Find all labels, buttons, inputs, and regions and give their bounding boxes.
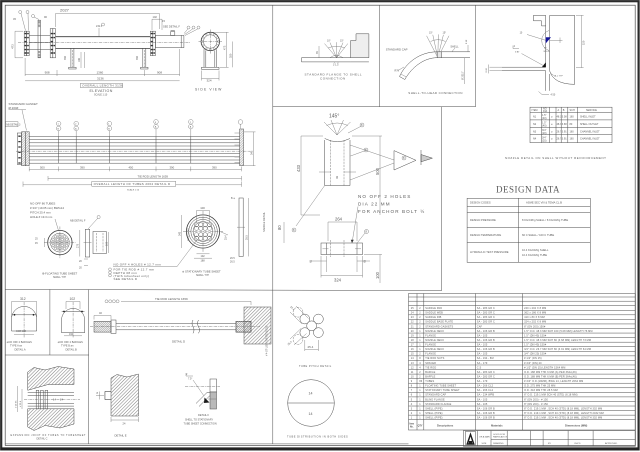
svg-text:4 50: 4 50 xyxy=(551,93,556,96)
svg-text:1.5" (DN 40) 150#: 1.5" (DN 40) 150# xyxy=(524,344,547,347)
svg-text:SA - 105: SA - 105 xyxy=(477,344,488,347)
svg-text:HYDRAULIC TEST PRESSURE: HYDRAULIC TEST PRESSURE xyxy=(470,250,509,254)
svg-text:(40): (40) xyxy=(542,117,547,120)
svg-text:SA - 266 CL2: SA - 266 CL2 xyxy=(477,389,494,392)
svg-text:ELEVATION: ELEVATION xyxy=(90,89,113,93)
svg-text:160: 160 xyxy=(570,130,575,133)
svg-text:TIE ROD LENGTH 1659: TIE ROD LENGTH 1659 xyxy=(138,175,169,179)
svg-text:⊕ FLOATING TUBE SHEET: ⊕ FLOATING TUBE SHEET xyxy=(42,272,77,276)
svg-text:100: 100 xyxy=(200,206,205,210)
svg-text:OR A MAR: OR A MAR xyxy=(479,436,490,439)
svg-text:473: 473 xyxy=(11,44,15,49)
svg-text:SCALE 1:10: SCALE 1:10 xyxy=(127,188,140,191)
svg-text:EXPANSION JOINT OF TUBES TO TU: EXPANSION JOINT OF TUBES TO TUBESHEET xyxy=(11,434,87,437)
svg-text:SMALL TYP: SMALL TYP xyxy=(53,276,66,279)
svg-text:3136: 3136 xyxy=(97,77,104,81)
svg-text:WELD: WELD xyxy=(544,51,550,53)
svg-text:DETAIL E: DETAIL E xyxy=(115,434,127,438)
svg-text:3.91: 3.91 xyxy=(562,138,567,141)
svg-text:⎈ STATIONARY TUBE SHEET: ⎈ STATIONARY TUBE SHEET xyxy=(182,270,221,274)
svg-text:102: 102 xyxy=(153,15,158,19)
svg-text:102: 102 xyxy=(70,297,76,301)
svg-text:SADDLE PAD: SADDLE PAD xyxy=(425,307,442,310)
svg-text:SHELL (PIPE): SHELL (PIPE) xyxy=(425,412,442,415)
svg-text:FLOATING TUBE SHEET: FLOATING TUBE SHEET xyxy=(425,385,456,388)
svg-text:SCH: SCH xyxy=(570,109,575,112)
svg-text:312: 312 xyxy=(20,297,26,301)
svg-text:15°: 15° xyxy=(443,32,447,35)
svg-text:186: 186 xyxy=(78,57,81,62)
svg-text:SIDE VIEW: SIDE VIEW xyxy=(195,88,222,92)
svg-text:324: 324 xyxy=(334,278,342,283)
svg-text:NB DETAIL F: NB DETAIL F xyxy=(70,219,86,223)
svg-text:STANDARD CAP: STANDARD CAP xyxy=(386,47,408,51)
svg-text:SA - 283 GR C: SA - 283 GR C xyxy=(477,307,495,310)
svg-text:SHELL INLET: SHELL INLET xyxy=(580,116,596,119)
svg-text:25.4: 25.4 xyxy=(225,235,228,240)
svg-text:OVERALL LENGTH OF TUBES 2064 D: OVERALL LENGTH OF TUBES 2064 DETAIL D xyxy=(94,182,171,186)
svg-text:8" (DN 200) - # 150: 8" (DN 200) - # 150 xyxy=(524,403,548,406)
svg-text:SADDLE BASE PLATE: SADDLE BASE PLATE xyxy=(425,321,453,324)
svg-text:BAFFLE: BAFFLE xyxy=(425,375,435,378)
svg-text:TIE ROD: TIE ROD xyxy=(425,366,436,369)
svg-text:TUBE PITCH DETAIL: TUBE PITCH DETAIL xyxy=(299,364,332,368)
svg-text:10.4 KG/CM²g TUBE: 10.4 KG/CM²g TUBE xyxy=(522,253,547,257)
svg-text:8" O.D. 219.1 MM , SCH 40 (STD: 8" O.D. 219.1 MM , SCH 40 (STD) (8.18 MM… xyxy=(524,417,602,420)
svg-text:SERVICE: SERVICE xyxy=(586,109,597,112)
svg-text:HOLE # 19.3 mm: HOLE # 19.3 mm xyxy=(30,215,53,219)
svg-text:DIA: DIA xyxy=(543,110,548,113)
svg-text:14: 14 xyxy=(309,392,313,396)
svg-text:SA - 179: SA - 179 xyxy=(477,380,488,383)
svg-text:DRAWING: DRAWING xyxy=(493,442,504,445)
svg-text:NO OFF 4 HOLES # 12.7 mm: NO OFF 4 HOLES # 12.7 mm xyxy=(114,262,162,266)
svg-text:SHELL TO STATIONARY: SHELL TO STATIONARY xyxy=(185,418,213,421)
svg-text:3/4" (DN 20) 150#: 3/4" (DN 20) 150# xyxy=(524,353,547,356)
svg-text:500: 500 xyxy=(40,165,45,169)
svg-text:NOZZLE NECK: NOZZLE NECK xyxy=(425,339,444,342)
svg-text:8" O.D. 219.1 MM SCH 40 (STD: 8" O.D. 219.1 MM SCH 40 (STD) (8.18 MM) xyxy=(524,394,578,397)
svg-text:FOR ANCHOR BOLT ½: FOR ANCHOR BOLT ½ xyxy=(358,208,425,214)
svg-text:⎈NO OFF 2 BAFFLES: ⎈NO OFF 2 BAFFLES xyxy=(58,341,84,344)
svg-text:908: 908 xyxy=(157,70,162,74)
svg-text:DESIGN PRESSURE: DESIGN PRESSURE xyxy=(470,218,496,222)
svg-text:PITCH 25.4 mm: PITCH 25.4 mm xyxy=(30,211,51,215)
svg-text:SA - 283 GR C: SA - 283 GR C xyxy=(477,312,495,315)
svg-text:7.5°: 7.5° xyxy=(188,378,192,381)
svg-text:# 1/2" (DN 15) LENGTH 1564 MM: # 1/2" (DN 15) LENGTH 1564 MM xyxy=(524,366,565,369)
svg-text:86: 86 xyxy=(419,380,423,383)
svg-text:NOZZLE NECK: NOZZLE NECK xyxy=(425,348,444,351)
svg-text:15°: 15° xyxy=(429,32,433,35)
svg-text:60 C SHELL / 100 C TUBE: 60 C SHELL / 100 C TUBE xyxy=(522,233,554,237)
svg-text:Materials: Materials xyxy=(491,424,503,428)
svg-text:ITEM: ITEM xyxy=(532,109,538,112)
svg-text:STATIONARY TUBE SHEET: STATIONARY TUBE SHEET xyxy=(425,389,460,392)
svg-text:8" (DN 200) - # 150: 8" (DN 200) - # 150 xyxy=(524,398,548,401)
svg-text:NO OFF 86 TUBES: NO OFF 86 TUBES xyxy=(30,202,55,206)
svg-text:Ø 200#: Ø 200# xyxy=(9,106,19,110)
svg-text:80: 80 xyxy=(277,225,282,230)
svg-text:1-1.5: 1-1.5 xyxy=(333,64,339,67)
svg-text:8 KG/CM²g SHELL / 8 KG/CM²g TU: 8 KG/CM²g SHELL / 8 KG/CM²g TUBE xyxy=(522,218,568,222)
svg-text:(20): (20) xyxy=(542,132,547,135)
svg-text:TYPE A an: TYPE A an xyxy=(10,345,23,348)
svg-text:SA - 106 GR B: SA - 106 GR B xyxy=(477,407,495,410)
svg-text:275: 275 xyxy=(77,243,80,248)
svg-text:SHELL (PIPE): SHELL (PIPE) xyxy=(425,417,442,420)
svg-text:SA - 194 - 8M: SA - 194 - 8M xyxy=(477,357,494,360)
svg-text:150: 150 xyxy=(582,40,586,45)
svg-text:SADDLE DETAIL: SADDLE DETAIL xyxy=(262,211,266,232)
svg-text:SADDLE WEB: SADDLE WEB xyxy=(425,312,443,315)
svg-text:B ⎈: B ⎈ xyxy=(231,197,235,200)
svg-text:1.5" O.D. 48.3 MM SCH 80 (3.: 1.5" O.D. 48.3 MM SCH 80 (3.68 MM) LENGT… xyxy=(524,339,591,342)
svg-text:100: 100 xyxy=(375,271,380,279)
svg-text:343: 343 xyxy=(249,150,253,155)
svg-text:8" O.D. 219.1 MM , SCH 40 (STD: 8" O.D. 219.1 MM , SCH 40 (STD) (8.18 MM… xyxy=(524,412,604,415)
svg-text:324 x 202 X 8 MM: 324 x 202 X 8 MM xyxy=(524,321,546,324)
svg-text:25.4: 25.4 xyxy=(308,345,314,349)
svg-text:3.91: 3.91 xyxy=(562,130,567,133)
svg-text:DETAIL F: DETAIL F xyxy=(198,413,210,417)
svg-text:O.D. 343 MM THK 28.5 MM: O.D. 343 MM THK 28.5 MM xyxy=(524,389,558,392)
svg-text:19: 19 xyxy=(411,334,415,337)
svg-text:14: 14 xyxy=(411,357,415,360)
svg-text:18: 18 xyxy=(411,339,415,342)
svg-text:APPROVED: APPROVED xyxy=(605,442,618,445)
svg-text:CHANNEL INLET: CHANNEL INLET xyxy=(580,130,600,133)
svg-text:# 1/2" (DN 15): # 1/2" (DN 15) xyxy=(524,357,542,360)
svg-text:NB DETAIL 3: NB DETAIL 3 xyxy=(6,123,21,126)
svg-text:DETAIL C: DETAIL C xyxy=(37,438,48,441)
svg-text:TUBES: TUBES xyxy=(425,380,434,383)
svg-text:O.D. 275 MM THK 25 MM: O.D. 275 MM THK 25 MM xyxy=(524,385,555,388)
svg-text:DIA 22 MM: DIA 22 MM xyxy=(358,202,391,207)
svg-text:O.D. 188 MM THK 6 MM (A) PER 3: O.D. 188 MM THK 6 MM (A) PER 364x(A6) xyxy=(524,371,577,374)
svg-text:1360: 1360 xyxy=(97,70,104,74)
svg-text:DETAIL B: DETAIL B xyxy=(66,347,78,351)
svg-text:TYPE B an: TYPE B an xyxy=(61,345,74,348)
svg-text:8" O.D. 219.1 MM , SCH 40 (STD: 8" O.D. 219.1 MM , SCH 40 (STD) (8.18 MM… xyxy=(524,407,602,410)
svg-text:Dimensions (MM): Dimensions (MM) xyxy=(565,424,587,428)
svg-text:STANDARD GASKETS: STANDARD GASKETS xyxy=(425,325,453,328)
svg-text:8" (DN 200) 150#: 8" (DN 200) 150# xyxy=(524,325,546,328)
svg-text:SIZE: SIZE xyxy=(482,443,487,445)
svg-text:SA - 105: SA - 105 xyxy=(477,353,488,356)
svg-text:SA - 105: SA - 105 xyxy=(477,398,488,401)
svg-text:100: 100 xyxy=(105,241,108,246)
svg-text:45°: 45° xyxy=(544,48,547,50)
svg-text:350: 350 xyxy=(229,53,233,58)
svg-text:28.5: 28.5 xyxy=(245,235,248,240)
svg-text:QTY: QTY xyxy=(418,424,423,427)
svg-text:16: 16 xyxy=(411,348,415,351)
svg-text:CHANNEL INLET: CHANNEL INLET xyxy=(580,138,600,141)
svg-text:CONNECTION: CONNECTION xyxy=(320,77,346,81)
svg-text:350: 350 xyxy=(136,55,139,60)
svg-text:NOZZLE DETAIL ON SHELL WITHOUT: NOZZLE DETAIL ON SHELL WITHOUT REINFORCE… xyxy=(505,156,606,160)
svg-text:COR 188: COR 188 xyxy=(16,330,27,333)
svg-text:SPACER: SPACER xyxy=(425,362,436,365)
svg-text:410 x 80 X 8 MM: 410 x 80 X 8 MM xyxy=(524,316,545,319)
svg-text:TUBE SHEET CONNECTION: TUBE SHEET CONNECTION xyxy=(184,423,217,426)
svg-text:SA - 106 GR B: SA - 106 GR B xyxy=(477,339,495,342)
svg-text:# 4-ST USE FOR TIE RODS: # 4-ST USE FOR TIE RODS xyxy=(266,325,269,356)
svg-text:SA - 106 GR B: SA - 106 GR B xyxy=(477,412,495,415)
svg-text:23: 23 xyxy=(411,316,415,319)
svg-text:SA - 179: SA - 179 xyxy=(477,362,488,365)
svg-text:188: 188 xyxy=(201,259,206,262)
svg-text:17: 17 xyxy=(411,344,415,347)
svg-text:FABRICATION: FABRICATION xyxy=(493,436,508,439)
svg-text:# 3/4" (DN) 20: # 3/4" (DN) 20 xyxy=(524,362,542,365)
svg-text:324: 324 xyxy=(207,79,212,83)
svg-text:25: 25 xyxy=(411,307,415,310)
svg-text:450: 450 xyxy=(129,165,134,169)
svg-text:O.D. 188 MM THK 6 MM (B) PER 3: O.D. 188 MM THK 6 MM (B) PER 364x(A6) xyxy=(524,375,577,378)
svg-text:Ø 19.3 HOLE: Ø 19.3 HOLE xyxy=(188,227,190,241)
svg-text:1.5" (DN 40) 150#: 1.5" (DN 40) 150# xyxy=(524,334,547,337)
svg-text:ASME SEC VIII & TEMA CL.B: ASME SEC VIII & TEMA CL.B xyxy=(526,201,562,205)
svg-text:SA - 106 GR B: SA - 106 GR B xyxy=(477,348,495,351)
svg-text:3.68: 3.68 xyxy=(562,123,567,126)
svg-text:SA - 283 GR C: SA - 283 GR C xyxy=(477,375,495,378)
svg-text:350: 350 xyxy=(64,55,67,60)
svg-text:362 x 186 X 8 MM: 362 x 186 X 8 MM xyxy=(524,312,546,315)
svg-text:# 25.4: # 25.4 xyxy=(20,400,22,407)
svg-text:SA - 105: SA - 105 xyxy=(477,334,488,337)
svg-text:BAFFLE: BAFFLE xyxy=(425,371,435,374)
svg-text:Ø 202.7: Ø 202.7 xyxy=(461,71,464,80)
svg-text:264: 264 xyxy=(335,217,343,222)
svg-text:SA - 283 GR C: SA - 283 GR C xyxy=(477,316,495,319)
svg-text:NO OFF 2 HOLES: NO OFF 2 HOLES xyxy=(358,194,411,199)
svg-text:13: 13 xyxy=(411,362,415,365)
svg-text:SHELL (PIPE): SHELL (PIPE) xyxy=(425,407,442,410)
svg-text:DESIGN DATA: DESIGN DATA xyxy=(496,185,560,195)
svg-text:26.5: 26.5 xyxy=(230,260,235,263)
svg-text:3/4" O.D. 26.7 MM SCH 80 (3.: 3/4" O.D. 26.7 MM SCH 80 (3.91 MM) LENGT… xyxy=(524,348,591,351)
svg-text:8: 8 xyxy=(310,260,312,264)
svg-text:(20): (20) xyxy=(542,139,547,142)
svg-text:FLANGE: FLANGE xyxy=(425,344,436,347)
svg-text:14: 14 xyxy=(309,412,313,416)
svg-text:8: 8 xyxy=(364,260,366,264)
svg-text:10.4 KG/CM²g SHELL: 10.4 KG/CM²g SHELL xyxy=(522,248,549,252)
svg-text:343: 343 xyxy=(178,231,181,236)
svg-text:GOOD FOR: GOOD FOR xyxy=(493,434,505,436)
svg-text:DESIGN CODES: DESIGN CODES xyxy=(470,201,491,205)
svg-text:DESIGN TEMPERATURE: DESIGN TEMPERATURE xyxy=(470,233,501,237)
svg-text:CHK'D: CHK'D xyxy=(574,443,581,445)
svg-text:240 x 202 X 8 MM: 240 x 202 X 8 MM xyxy=(524,307,546,310)
svg-text:No.: No. xyxy=(410,427,414,429)
svg-text:SA - 266 CL2: SA - 266 CL2 xyxy=(477,385,494,388)
svg-text:15: 15 xyxy=(411,353,415,356)
svg-text:SHELL: SHELL xyxy=(450,44,459,48)
svg-text:SHELL-TO-HEAD CONNECTION: SHELL-TO-HEAD CONNECTION xyxy=(408,91,463,95)
svg-text:BLIND FLANGE: BLIND FLANGE xyxy=(425,398,445,401)
svg-text:STANDARD CAP: STANDARD CAP xyxy=(425,394,446,397)
svg-text:24: 24 xyxy=(411,312,415,315)
svg-text:# 3/4" O.D.(19MM), BWG 14, LEN: # 3/4" O.D.(19MM), BWG 14, LENGTH 2064 M… xyxy=(524,380,583,383)
svg-text:SA - 106 GR B: SA - 106 GR B xyxy=(477,417,495,420)
svg-text:TIE ROD NUTS: TIE ROD NUTS xyxy=(425,357,444,360)
svg-text:390: 390 xyxy=(170,165,175,169)
svg-text:SEE DETAIL F: SEE DETAIL F xyxy=(163,24,180,28)
svg-text:10°: 10° xyxy=(327,40,331,43)
svg-text:SMALL TYP: SMALL TYP xyxy=(196,274,209,277)
svg-text:10: 10 xyxy=(411,375,415,378)
svg-text:162: 162 xyxy=(69,333,74,336)
svg-text:102: 102 xyxy=(201,255,206,258)
svg-text:SA - 106 GR B: SA - 106 GR B xyxy=(477,330,495,333)
svg-text:Descriptions: Descriptions xyxy=(437,424,454,428)
svg-text:⎈NO OFF 2 BAFFLES: ⎈NO OFF 2 BAFFLES xyxy=(7,341,33,344)
svg-text:FLANGE: FLANGE xyxy=(425,353,436,356)
svg-text:SCALE 1:10: SCALE 1:10 xyxy=(94,94,108,97)
svg-text:ALL TYP: ALL TYP xyxy=(554,75,563,78)
svg-text:145°: 145° xyxy=(329,114,339,120)
svg-text:TIE ROD LENGTH 1659: TIE ROD LENGTH 1659 xyxy=(155,297,188,301)
svg-text:OVERALL LENGTH 3136: OVERALL LENGTH 3136 xyxy=(82,84,123,88)
svg-text:12: 12 xyxy=(411,366,415,369)
svg-text:390: 390 xyxy=(80,165,85,169)
svg-text:473: 473 xyxy=(222,45,226,50)
svg-text:SEE DETAIL D: SEE DETAIL D xyxy=(114,277,138,281)
svg-text:5.08: 5.08 xyxy=(562,116,567,119)
svg-text:FLANGE: FLANGE xyxy=(425,334,436,337)
svg-text:11: 11 xyxy=(411,371,414,374)
svg-text:SADDLE RIB: SADDLE RIB xyxy=(425,316,441,319)
svg-text:C.S: C.S xyxy=(477,366,482,369)
svg-text:160: 160 xyxy=(570,138,575,141)
svg-text:390: 390 xyxy=(212,165,217,169)
svg-text:DETAIL D: DETAIL D xyxy=(172,340,186,344)
svg-text:Item: Item xyxy=(409,423,414,426)
svg-text:STANDARD FLANGE: STANDARD FLANGE xyxy=(425,403,451,406)
svg-text:2027: 2027 xyxy=(60,8,70,13)
svg-text:500: 500 xyxy=(375,167,380,175)
svg-text:7.5°: 7.5° xyxy=(515,51,519,54)
svg-text:20: 20 xyxy=(411,330,415,333)
svg-text:# 3/4" (19.05 mm) BWG14: # 3/4" (19.05 mm) BWG14 xyxy=(30,206,64,210)
svg-text:# 19.05: # 19.05 xyxy=(15,400,17,408)
svg-text:22: 22 xyxy=(411,321,415,324)
svg-text:15°: 15° xyxy=(340,40,344,43)
svg-text:SA - 283 GR C: SA - 283 GR C xyxy=(477,321,495,324)
svg-text:TUBE DISTRIBUTION IN BOTH SIDE: TUBE DISTRIBUTION IN BOTH SIDES xyxy=(287,435,348,439)
svg-text:SA - 234 WPB: SA - 234 WPB xyxy=(477,394,495,397)
svg-text:SA - 283 GR C: SA - 283 GR C xyxy=(477,371,495,374)
svg-text:160: 160 xyxy=(570,116,575,119)
svg-text:908: 908 xyxy=(45,70,50,74)
svg-text:SA - 105: SA - 105 xyxy=(477,403,488,406)
svg-text:CAF: CAF xyxy=(477,325,483,328)
svg-text:SHELL OUTLET: SHELL OUTLET xyxy=(580,123,599,126)
svg-text:(40): (40) xyxy=(542,125,547,128)
svg-text:433: 433 xyxy=(296,164,301,172)
svg-text:DETAIL A: DETAIL A xyxy=(15,347,26,351)
svg-text:1.5" O.D. 48.3 MM SCH 160 (5: 1.5" O.D. 48.3 MM SCH 160 (5.08 MM) LENG… xyxy=(524,330,592,333)
svg-text:21: 21 xyxy=(411,325,415,328)
svg-text:8: 8 xyxy=(336,176,338,180)
svg-text:NOZZLE NECK: NOZZLE NECK xyxy=(425,330,444,333)
